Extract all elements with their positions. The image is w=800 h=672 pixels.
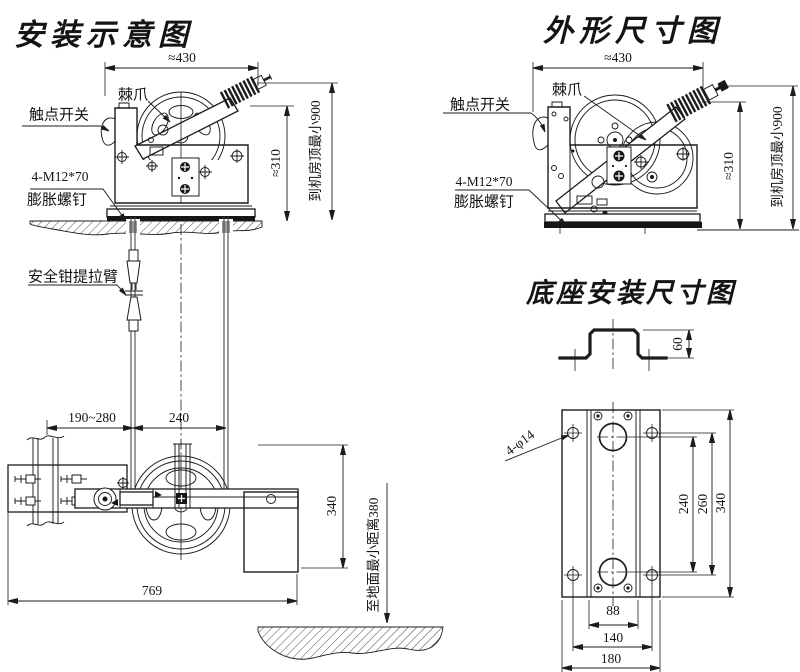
outline-label-bolt-spec: 4-M12*70 bbox=[456, 174, 513, 190]
outline-dim-width: ≈430 bbox=[604, 50, 632, 66]
install-label-expansion-bolt: 膨胀螺钉 bbox=[27, 189, 87, 210]
outline-label-pawl: 棘爪 bbox=[552, 79, 582, 100]
install-label-safety-gear-arm: 安全钳提拉臂 bbox=[28, 266, 118, 287]
tension-pulley bbox=[75, 444, 298, 572]
install-label-to-ground: 至地面最小距离380 bbox=[362, 498, 382, 613]
governor-ropes bbox=[131, 217, 228, 492]
guide-rail-bracket bbox=[8, 436, 127, 605]
install-dimensions bbox=[8, 62, 387, 623]
outline-label-contact-switch: 触点开关 bbox=[450, 94, 510, 115]
adjust-cylinder bbox=[120, 492, 153, 505]
base-dim-circle-spacing: 240 bbox=[676, 494, 692, 514]
install-dim-overall-reach: 769 bbox=[142, 583, 162, 599]
outline-view-title: 外形尺寸图 bbox=[543, 6, 723, 50]
corner-holes bbox=[564, 424, 661, 584]
technical-drawing-sheet: 安装示意图 ≈430 棘爪 触点开关 4-M12*70 膨胀螺钉 安全钳提拉臂 … bbox=[0, 0, 800, 672]
outline-label-to-ceiling: 到机房顶最小900 bbox=[766, 106, 786, 207]
outline-dim-height: ≈310 bbox=[721, 152, 737, 180]
install-label-to-ceiling: 到机房顶最小900 bbox=[304, 100, 324, 201]
base-dim-hole-spacing-h: 140 bbox=[603, 630, 623, 646]
install-dim-width: ≈430 bbox=[168, 50, 196, 66]
install-label-pawl: 棘爪 bbox=[118, 84, 148, 105]
base-dim-plate-width: 180 bbox=[601, 651, 621, 667]
switch-lever-flag bbox=[101, 118, 115, 145]
rope-turnbuckle bbox=[125, 250, 143, 331]
base-dim-plate-height: 340 bbox=[713, 493, 729, 513]
outline-switch-flag bbox=[533, 117, 548, 150]
install-label-bolt-spec: 4-M12*70 bbox=[32, 169, 89, 185]
ground-hatch bbox=[258, 627, 443, 659]
install-dim-rail-to-rope: 190~280 bbox=[68, 410, 116, 426]
outline-tension-spring bbox=[667, 75, 731, 122]
install-dim-height: ≈310 bbox=[268, 149, 284, 177]
machine-room-slab bbox=[30, 219, 262, 236]
install-view-title: 安装示意图 bbox=[14, 10, 194, 54]
base-plate bbox=[107, 209, 255, 217]
base-view-title: 底座安装尺寸图 bbox=[526, 271, 736, 310]
base-dimensions bbox=[562, 410, 734, 672]
outline-label-expansion-bolt: 膨胀螺钉 bbox=[454, 191, 514, 212]
install-dim-tensioner-height: 340 bbox=[324, 496, 340, 516]
base-dim-hole-spacing-v: 260 bbox=[695, 494, 711, 514]
base-dim-rail-spacing: 88 bbox=[606, 603, 620, 619]
install-label-contact-switch: 触点开关 bbox=[29, 104, 89, 125]
outline-base-plate bbox=[545, 214, 700, 222]
base-dim-profile-height: 60 bbox=[670, 337, 686, 351]
install-dim-rope-spacing: 240 bbox=[169, 410, 189, 426]
